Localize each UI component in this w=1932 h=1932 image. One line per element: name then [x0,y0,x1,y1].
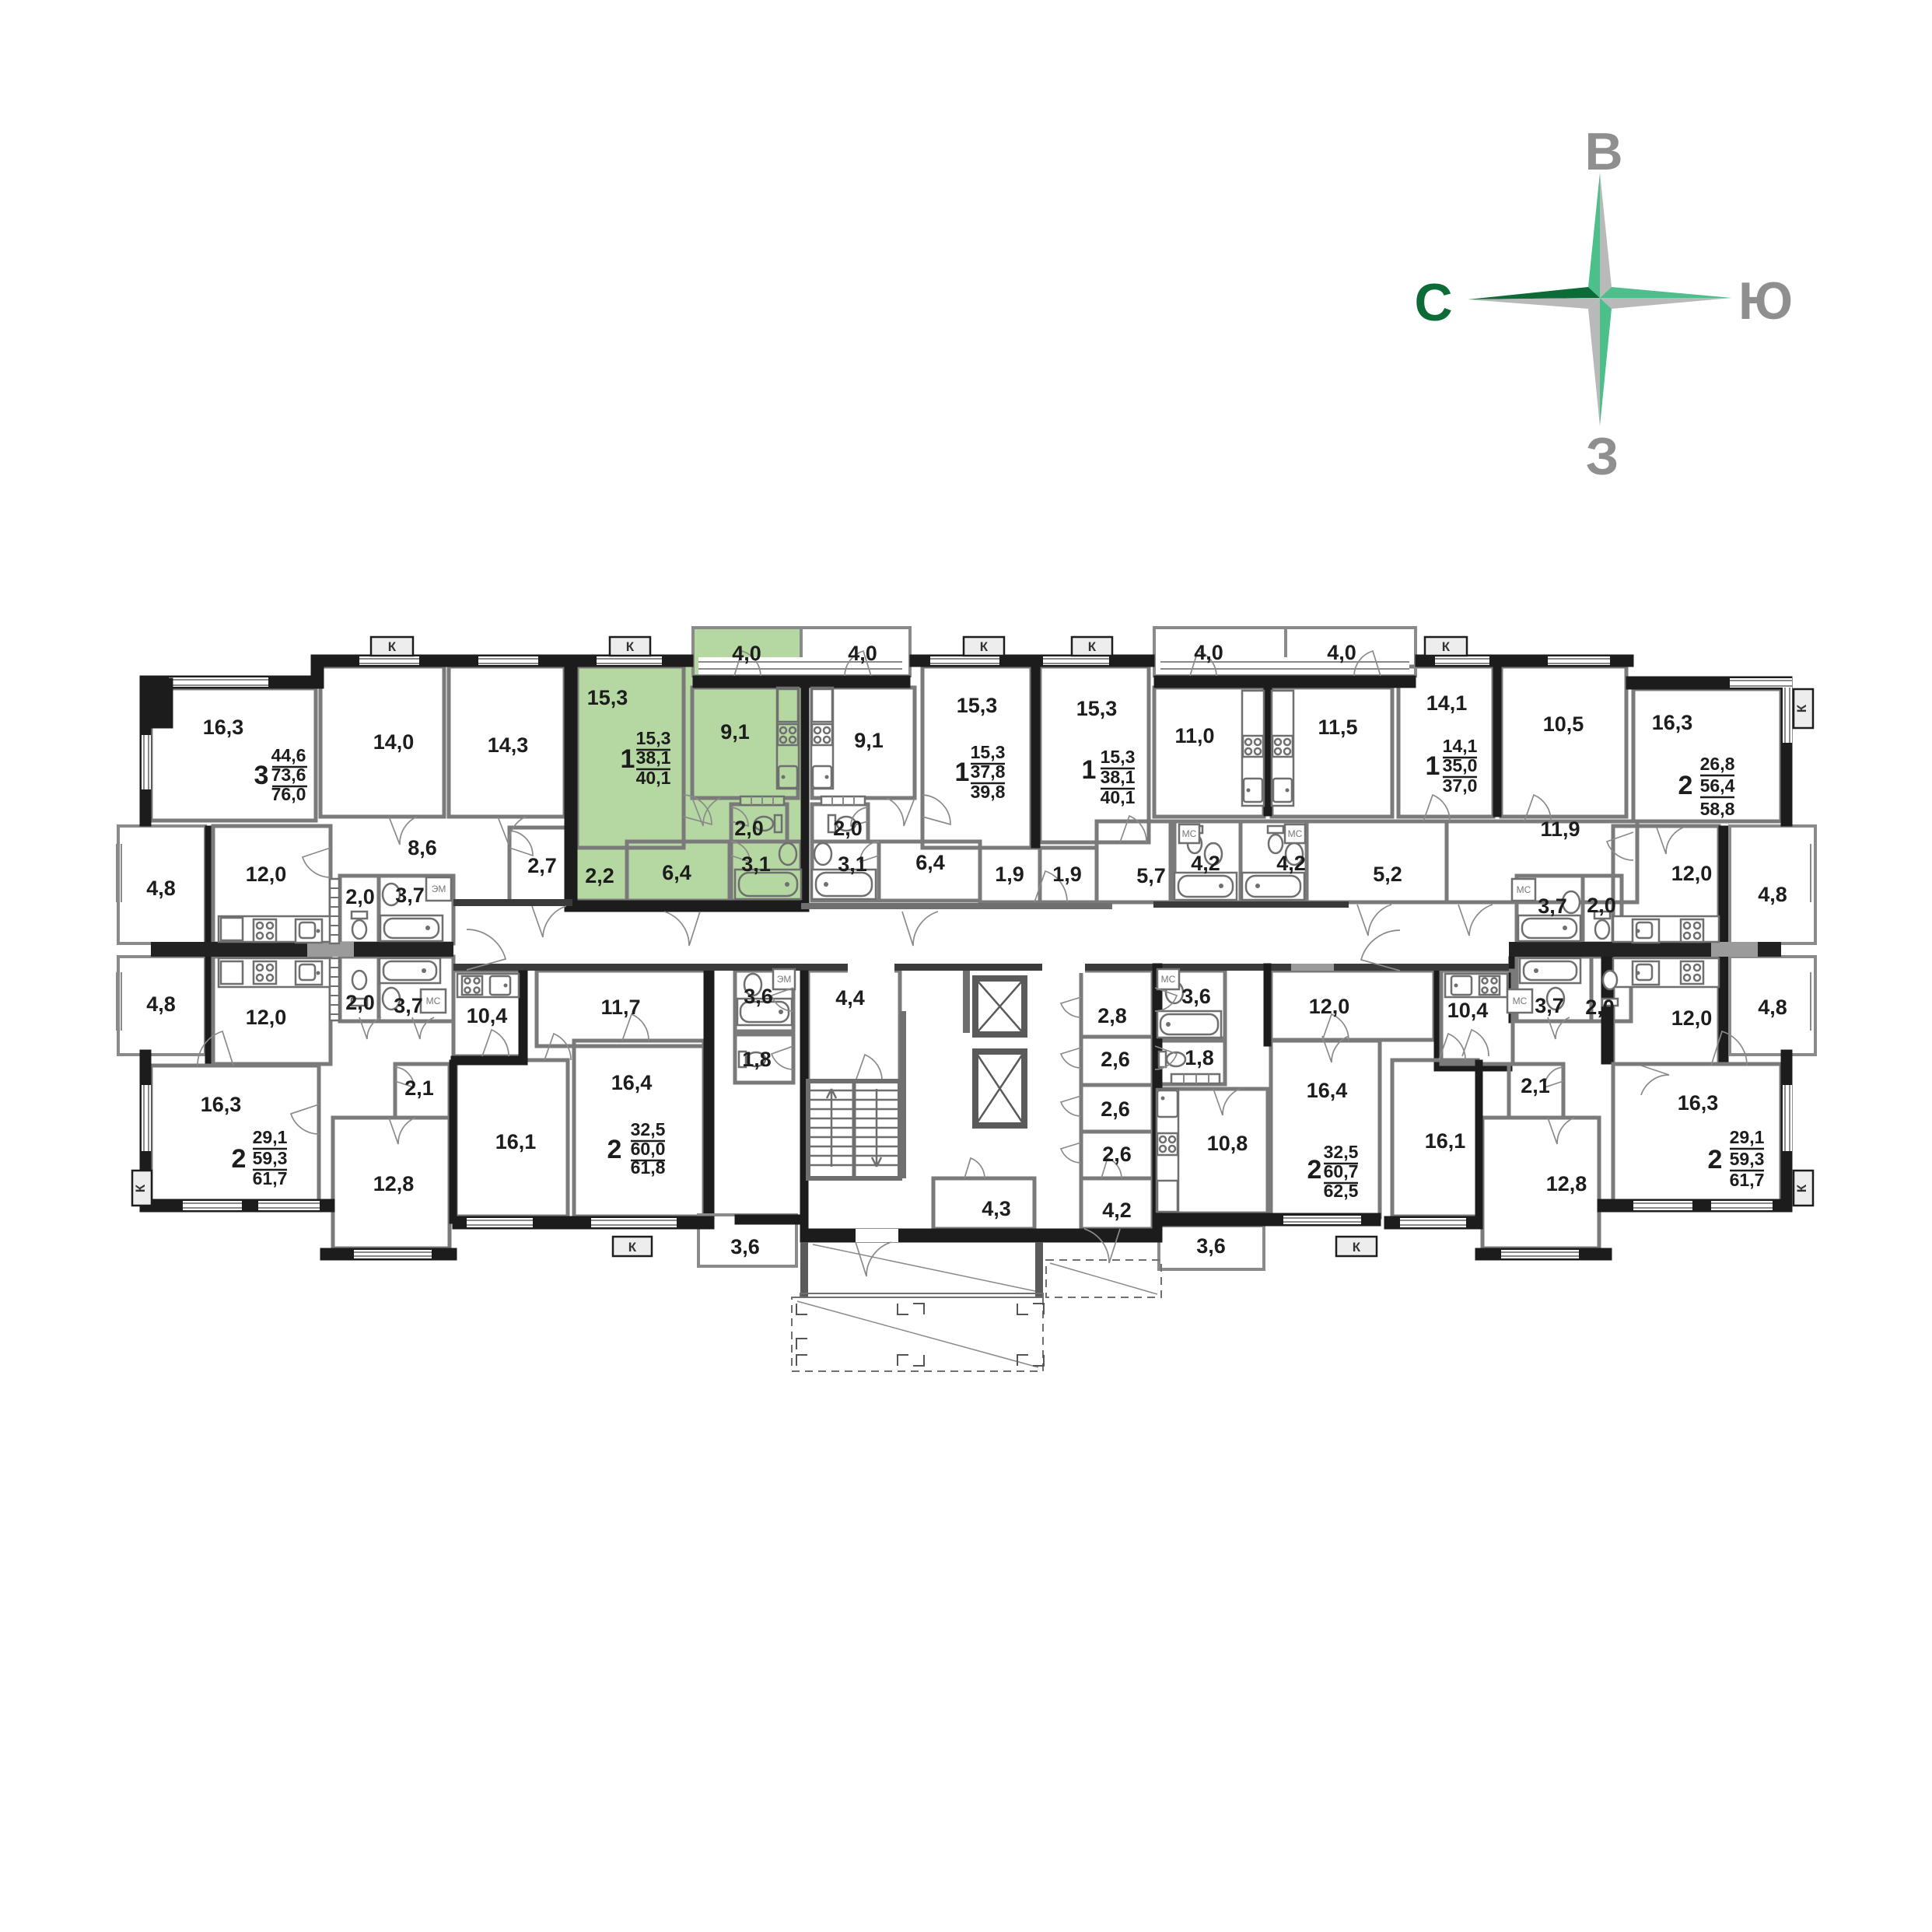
svg-text:4,0: 4,0 [1194,641,1223,664]
svg-text:3,6: 3,6 [1196,1234,1226,1258]
svg-text:В: В [1584,122,1622,181]
svg-text:39,8: 39,8 [971,782,1006,802]
svg-text:Ю: Ю [1738,271,1793,331]
svg-text:2,1: 2,1 [404,1076,434,1100]
svg-text:2,2: 2,2 [585,864,614,887]
svg-text:32,5: 32,5 [631,1119,666,1139]
svg-text:16,4: 16,4 [1307,1079,1348,1102]
svg-text:2: 2 [1708,1145,1723,1174]
svg-text:35,0: 35,0 [1443,755,1478,775]
svg-text:МС: МС [426,996,441,1006]
svg-text:4,8: 4,8 [146,992,176,1016]
svg-text:2,0: 2,0 [1585,996,1615,1019]
svg-text:К: К [1088,639,1097,654]
svg-text:12,0: 12,0 [1309,995,1350,1018]
svg-text:С: С [1414,273,1452,332]
svg-text:2: 2 [1307,1155,1322,1185]
svg-text:15,3: 15,3 [1076,697,1118,720]
svg-text:40,1: 40,1 [636,768,671,788]
svg-text:МС: МС [1288,828,1303,839]
svg-text:К: К [980,639,989,654]
svg-text:2,0: 2,0 [345,885,375,908]
svg-text:5,2: 5,2 [1373,863,1402,886]
svg-text:4,2: 4,2 [1276,852,1306,875]
svg-text:12,8: 12,8 [1546,1172,1587,1195]
svg-text:12,0: 12,0 [246,1006,287,1029]
svg-text:15,3: 15,3 [587,686,628,709]
svg-text:3,7: 3,7 [395,884,425,907]
svg-text:ЭМ: ЭМ [432,884,446,894]
svg-text:К: К [1794,704,1809,712]
svg-text:МС: МС [1182,828,1197,839]
svg-text:16,3: 16,3 [1652,711,1693,734]
svg-text:15,3: 15,3 [971,742,1006,762]
svg-text:ЭМ: ЭМ [777,974,792,985]
svg-text:2,7: 2,7 [527,854,557,877]
svg-text:10,5: 10,5 [1543,712,1584,736]
svg-text:15,3: 15,3 [636,728,671,748]
svg-text:40,1: 40,1 [1101,787,1136,807]
svg-text:10,4: 10,4 [467,1004,508,1027]
svg-text:29,1: 29,1 [1730,1127,1765,1147]
svg-text:76,0: 76,0 [271,784,306,804]
svg-text:14,1: 14,1 [1426,691,1468,715]
svg-text:3,6: 3,6 [1181,985,1211,1008]
svg-text:2,0: 2,0 [734,817,764,840]
svg-text:1: 1 [1082,755,1097,785]
svg-text:4,8: 4,8 [146,877,176,900]
svg-text:К: К [626,639,635,654]
svg-text:МС: МС [1513,996,1528,1006]
svg-text:4,2: 4,2 [1191,852,1220,875]
svg-text:3: 3 [254,761,269,790]
svg-text:14,1: 14,1 [1443,736,1478,756]
svg-text:К: К [388,639,397,654]
svg-text:16,3: 16,3 [203,716,244,739]
svg-text:38,1: 38,1 [636,747,671,768]
svg-text:3,1: 3,1 [741,852,771,876]
svg-text:37,0: 37,0 [1443,775,1478,796]
svg-text:2,1: 2,1 [1521,1074,1550,1097]
svg-text:61,7: 61,7 [1730,1170,1765,1190]
svg-text:26,8: 26,8 [1700,754,1735,774]
svg-text:44,6: 44,6 [271,745,306,765]
svg-text:3,7: 3,7 [1538,894,1567,918]
svg-text:2,0: 2,0 [833,817,863,840]
svg-text:4,2: 4,2 [1102,1199,1132,1222]
svg-text:14,0: 14,0 [373,730,415,754]
svg-text:11,7: 11,7 [600,996,640,1019]
svg-text:15,3: 15,3 [957,694,998,717]
svg-text:1,8: 1,8 [742,1048,772,1071]
svg-text:1: 1 [955,758,970,787]
svg-text:4,8: 4,8 [1758,996,1787,1019]
svg-text:16,3: 16,3 [1678,1091,1719,1115]
svg-text:59,3: 59,3 [253,1148,288,1168]
svg-text:4,3: 4,3 [982,1197,1011,1220]
svg-text:8,6: 8,6 [408,836,437,859]
svg-text:38,1: 38,1 [1101,767,1136,787]
svg-text:12,8: 12,8 [373,1172,415,1195]
svg-text:К: К [1794,1184,1809,1192]
svg-text:4,0: 4,0 [848,642,877,665]
svg-text:4,0: 4,0 [1327,641,1356,664]
svg-text:16,1: 16,1 [495,1130,537,1153]
svg-text:9,1: 9,1 [720,720,750,744]
svg-text:4,4: 4,4 [835,986,865,1010]
svg-text:2,8: 2,8 [1097,1004,1127,1027]
svg-text:61,7: 61,7 [253,1168,288,1188]
svg-text:К: К [1353,1240,1361,1255]
svg-text:2,0: 2,0 [345,991,375,1014]
svg-text:2,6: 2,6 [1101,1048,1130,1071]
svg-text:1: 1 [1426,751,1440,781]
svg-text:3,1: 3,1 [838,852,867,876]
svg-text:37,8: 37,8 [971,761,1006,782]
svg-text:2: 2 [232,1144,247,1174]
svg-text:62,5: 62,5 [1324,1181,1359,1201]
svg-text:4,8: 4,8 [1758,883,1787,906]
svg-text:3,6: 3,6 [730,1235,760,1258]
svg-text:32,5: 32,5 [1324,1142,1359,1162]
svg-text:2: 2 [607,1135,622,1164]
svg-text:К: К [133,1184,148,1192]
svg-text:3,7: 3,7 [394,994,423,1017]
svg-text:МС: МС [1161,974,1176,985]
svg-text:10,4: 10,4 [1447,999,1489,1022]
svg-text:12,0: 12,0 [1671,862,1713,885]
svg-text:12,0: 12,0 [1671,1006,1713,1030]
svg-text:29,1: 29,1 [253,1127,288,1147]
svg-text:14,3: 14,3 [488,733,529,757]
svg-text:11,0: 11,0 [1174,724,1214,747]
svg-text:59,3: 59,3 [1730,1149,1765,1169]
svg-text:5,7: 5,7 [1136,864,1166,887]
svg-text:2,6: 2,6 [1101,1097,1130,1121]
svg-text:61,8: 61,8 [631,1157,666,1178]
svg-text:15,3: 15,3 [1101,747,1136,767]
svg-text:12,0: 12,0 [246,863,287,886]
svg-text:МС: МС [1517,884,1531,895]
svg-text:60,0: 60,0 [631,1139,666,1159]
svg-text:3,7: 3,7 [1535,994,1564,1017]
svg-text:2,6: 2,6 [1102,1143,1132,1166]
svg-text:11,9: 11,9 [1540,817,1580,841]
svg-text:К: К [1442,639,1451,654]
svg-text:11,5: 11,5 [1318,716,1357,739]
svg-text:2: 2 [1678,771,1693,800]
svg-text:16,4: 16,4 [611,1071,653,1094]
svg-text:58,8: 58,8 [1700,799,1735,819]
svg-text:1,9: 1,9 [995,863,1024,886]
svg-text:К: К [628,1240,637,1255]
svg-text:16,3: 16,3 [201,1093,242,1116]
svg-text:2,0: 2,0 [1587,894,1616,917]
svg-text:10,8: 10,8 [1207,1132,1248,1155]
svg-text:1: 1 [621,744,635,774]
svg-text:6,4: 6,4 [915,851,945,874]
svg-text:1,8: 1,8 [1185,1046,1214,1069]
svg-text:4,0: 4,0 [732,642,761,665]
svg-text:56,4: 56,4 [1700,775,1735,796]
svg-text:16,1: 16,1 [1425,1129,1466,1153]
svg-text:3,6: 3,6 [744,985,773,1008]
svg-text:1,9: 1,9 [1052,863,1082,886]
svg-text:9,1: 9,1 [854,729,884,752]
svg-text:З: З [1586,427,1619,486]
svg-text:6,4: 6,4 [662,861,691,884]
svg-text:60,7: 60,7 [1324,1161,1359,1181]
svg-text:73,6: 73,6 [271,765,306,785]
